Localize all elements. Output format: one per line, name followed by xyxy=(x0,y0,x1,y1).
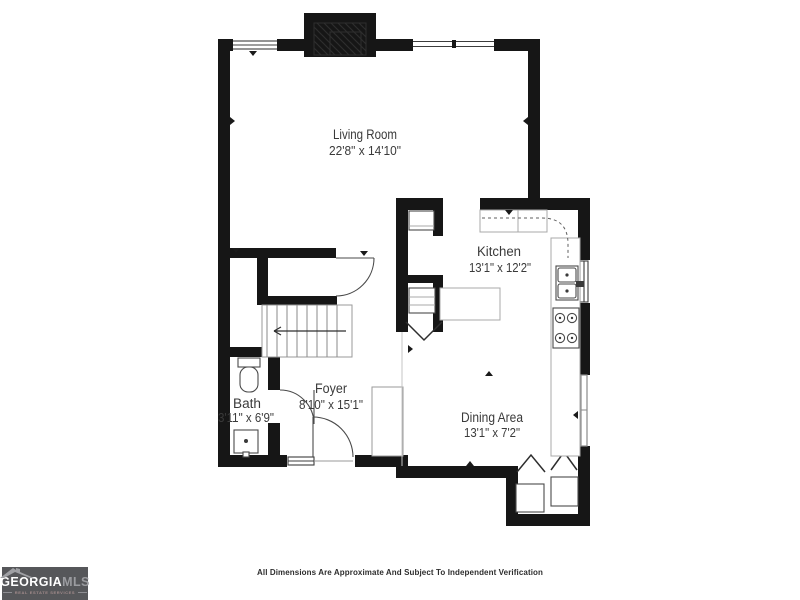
logo-wordmark: GEORGIAMLS xyxy=(0,576,89,589)
foyer-dimensions: 8'10" x 15'1" xyxy=(299,397,363,412)
logo-brand-secondary: MLS xyxy=(62,576,90,589)
foyer-closet xyxy=(372,387,403,456)
living-room-dimensions: 22'8" x 14'10" xyxy=(329,143,401,158)
entry-door xyxy=(313,417,353,461)
foyer-label: Foyer xyxy=(315,381,347,396)
living-room-label: Living Room xyxy=(333,127,397,142)
kitchen-counter-top xyxy=(480,210,547,232)
disclaimer-text: All Dimensions Are Approximate And Subje… xyxy=(0,568,800,577)
bath-vanity-sink xyxy=(234,430,258,457)
kitchen-dimensions: 13'1" x 12'2" xyxy=(469,260,531,275)
kitchen-label: Kitchen xyxy=(477,244,521,259)
roof-icon xyxy=(0,568,34,578)
stair-closet-door xyxy=(336,258,374,296)
tagline-rule-right xyxy=(78,592,87,593)
staircase xyxy=(262,305,352,357)
tagline-text: REAL ESTATE SERVICES xyxy=(15,590,75,595)
bath-dimensions: 3'11" x 6'9" xyxy=(218,410,274,425)
kitchen-island xyxy=(440,288,500,320)
window-top-left xyxy=(229,39,281,51)
logo-tagline: REAL ESTATE SERVICES xyxy=(3,590,87,595)
pantry-closets xyxy=(409,211,435,313)
dining-area-label: Dining Area xyxy=(461,410,523,425)
sliding-glass-door xyxy=(581,375,587,446)
georgia-mls-logo: GEORGIAMLS REAL ESTATE SERVICES xyxy=(2,567,88,600)
fireplace xyxy=(304,13,376,57)
window-top-right xyxy=(410,39,497,51)
floor-plan: Living Room 22'8" x 14'10" Kitchen 13'1"… xyxy=(0,0,800,600)
laundry-appliances xyxy=(516,477,578,512)
stove xyxy=(553,308,579,348)
tagline-rule-left xyxy=(3,592,12,593)
bath-label: Bath xyxy=(233,396,261,411)
dining-area-dimensions: 13'1" x 7'2" xyxy=(464,425,520,440)
window-bath-wall xyxy=(288,457,314,465)
toilet xyxy=(238,358,260,392)
floor-plan-image: Living Room 22'8" x 14'10" Kitchen 13'1"… xyxy=(0,0,800,600)
